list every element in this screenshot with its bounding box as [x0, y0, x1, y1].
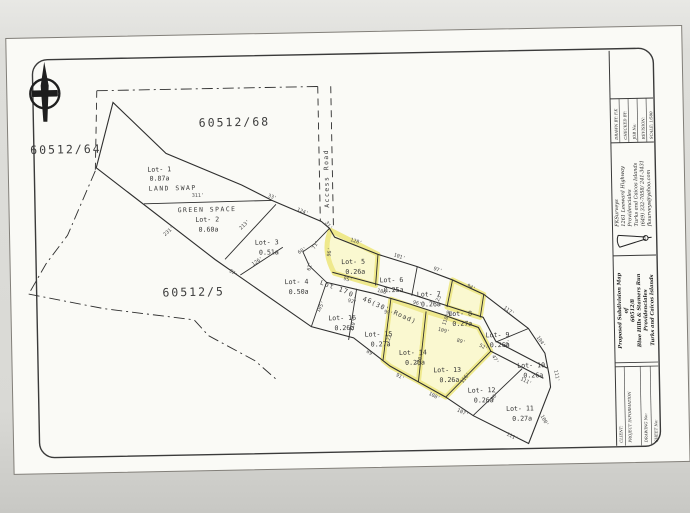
lot-label: Lot- 4: [285, 278, 309, 286]
lot-label: Lot- 10: [517, 361, 545, 370]
lot-area-label: 0.60a: [198, 225, 218, 233]
parcel-label-south: 60512/5: [162, 284, 225, 299]
lot-area-label: 0.27a: [452, 320, 472, 328]
drawn-by-field: DRAWN BY: F.K: [613, 108, 619, 141]
lot-area-label: 0.51a: [259, 248, 279, 256]
company-address1: 1261 Leeward Highway: [620, 166, 627, 227]
access-road-label: Access Road: [322, 149, 331, 208]
lot-label: Lot- 1: [147, 165, 171, 173]
green-space-label: GREEN SPACE: [178, 205, 237, 214]
lot-label: Lot- 12: [468, 386, 496, 395]
checked-by-field: CHECKED BY:: [622, 110, 628, 139]
lot-area-label: 0.26a: [439, 376, 459, 384]
parcel-label-west: 60512/64: [30, 142, 102, 157]
drawing-title: Proposed Subdivision Map of 60512/8 Blue…: [616, 272, 656, 350]
drawing-no-label: DRAWING No:: [643, 412, 649, 443]
lot-area-label: 0.26a: [345, 268, 365, 276]
lot-label: Lot- 2: [195, 215, 219, 223]
lot-label: Lot- 9: [486, 331, 510, 339]
scale-field: SCALE: 1/500: [648, 111, 654, 139]
lot-label: Lot- 11: [506, 404, 534, 413]
company-email: fksurveys@yahoo.com: [645, 170, 653, 228]
drawing-title-line2: of: [624, 307, 630, 314]
lot-label: Lot- 5: [341, 258, 365, 266]
job-no-field: JOB No:: [631, 123, 636, 141]
lot-area-label: 0.27a: [512, 414, 532, 422]
client-label: CLIENT:: [618, 425, 623, 443]
revision-field: REVISION:: [640, 116, 645, 140]
scanned-survey-sheet: { "colors": { "paper": "#fafaf6", "backd…: [0, 0, 690, 513]
land-swap-label: LAND SWAP: [149, 184, 197, 193]
drawing-title-parcel: 60512/8: [630, 298, 636, 322]
company-name: FKSurveys: [614, 199, 621, 228]
lot-area-label: 0.50a: [289, 288, 309, 296]
paper-page: 60512/64 60512/68 60512/5 LAND SWAP GREE…: [6, 25, 690, 474]
parcel-label-north: 60512/68: [199, 114, 271, 129]
lot-label: Lot- 13: [433, 366, 461, 375]
sheet-no-label: SHEET No:: [653, 419, 658, 442]
lot-label: Lot- 3: [255, 238, 279, 246]
project-info-label: PROJECT INFORMATION: [627, 391, 633, 444]
lot-label: Lot- 6: [379, 276, 403, 284]
survey-plan-canvas: 60512/64 60512/68 60512/5 LAND SWAP GREE…: [0, 0, 690, 513]
dimension-label: 311': [192, 193, 204, 199]
lot-area-label: 0.87a: [149, 174, 169, 182]
